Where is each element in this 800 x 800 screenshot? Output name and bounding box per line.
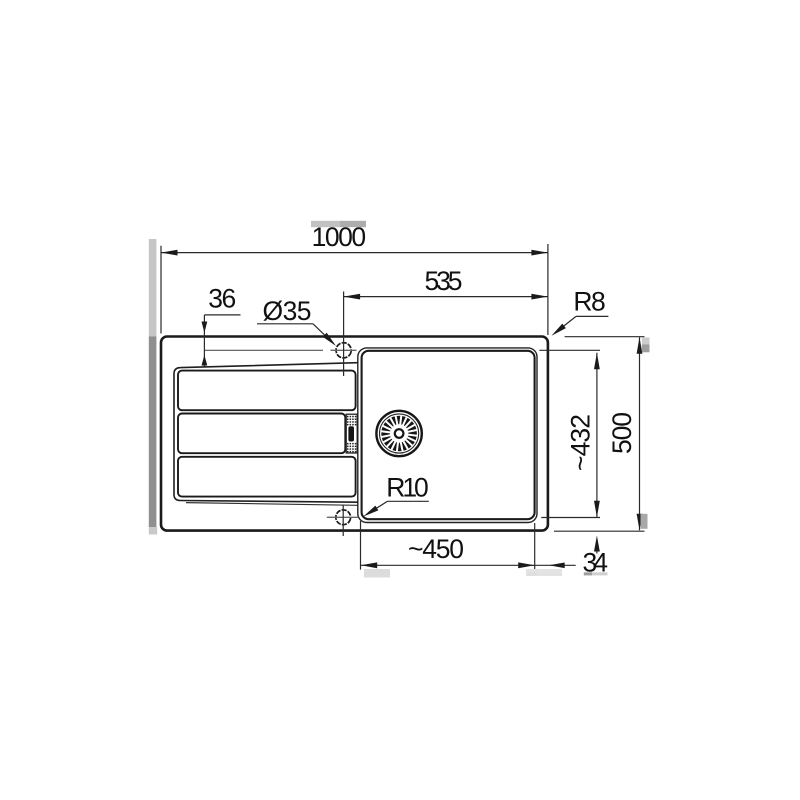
svg-text:535: 535 <box>425 266 463 296</box>
svg-text:Ø35: Ø35 <box>263 296 312 326</box>
svg-text:500: 500 <box>607 412 637 454</box>
svg-text:~450: ~450 <box>408 534 464 564</box>
svg-text:~432: ~432 <box>565 414 595 471</box>
svg-text:36: 36 <box>208 284 236 314</box>
svg-text:R10: R10 <box>386 472 429 502</box>
svg-text:R8: R8 <box>573 286 605 316</box>
svg-text:1000: 1000 <box>312 222 367 252</box>
